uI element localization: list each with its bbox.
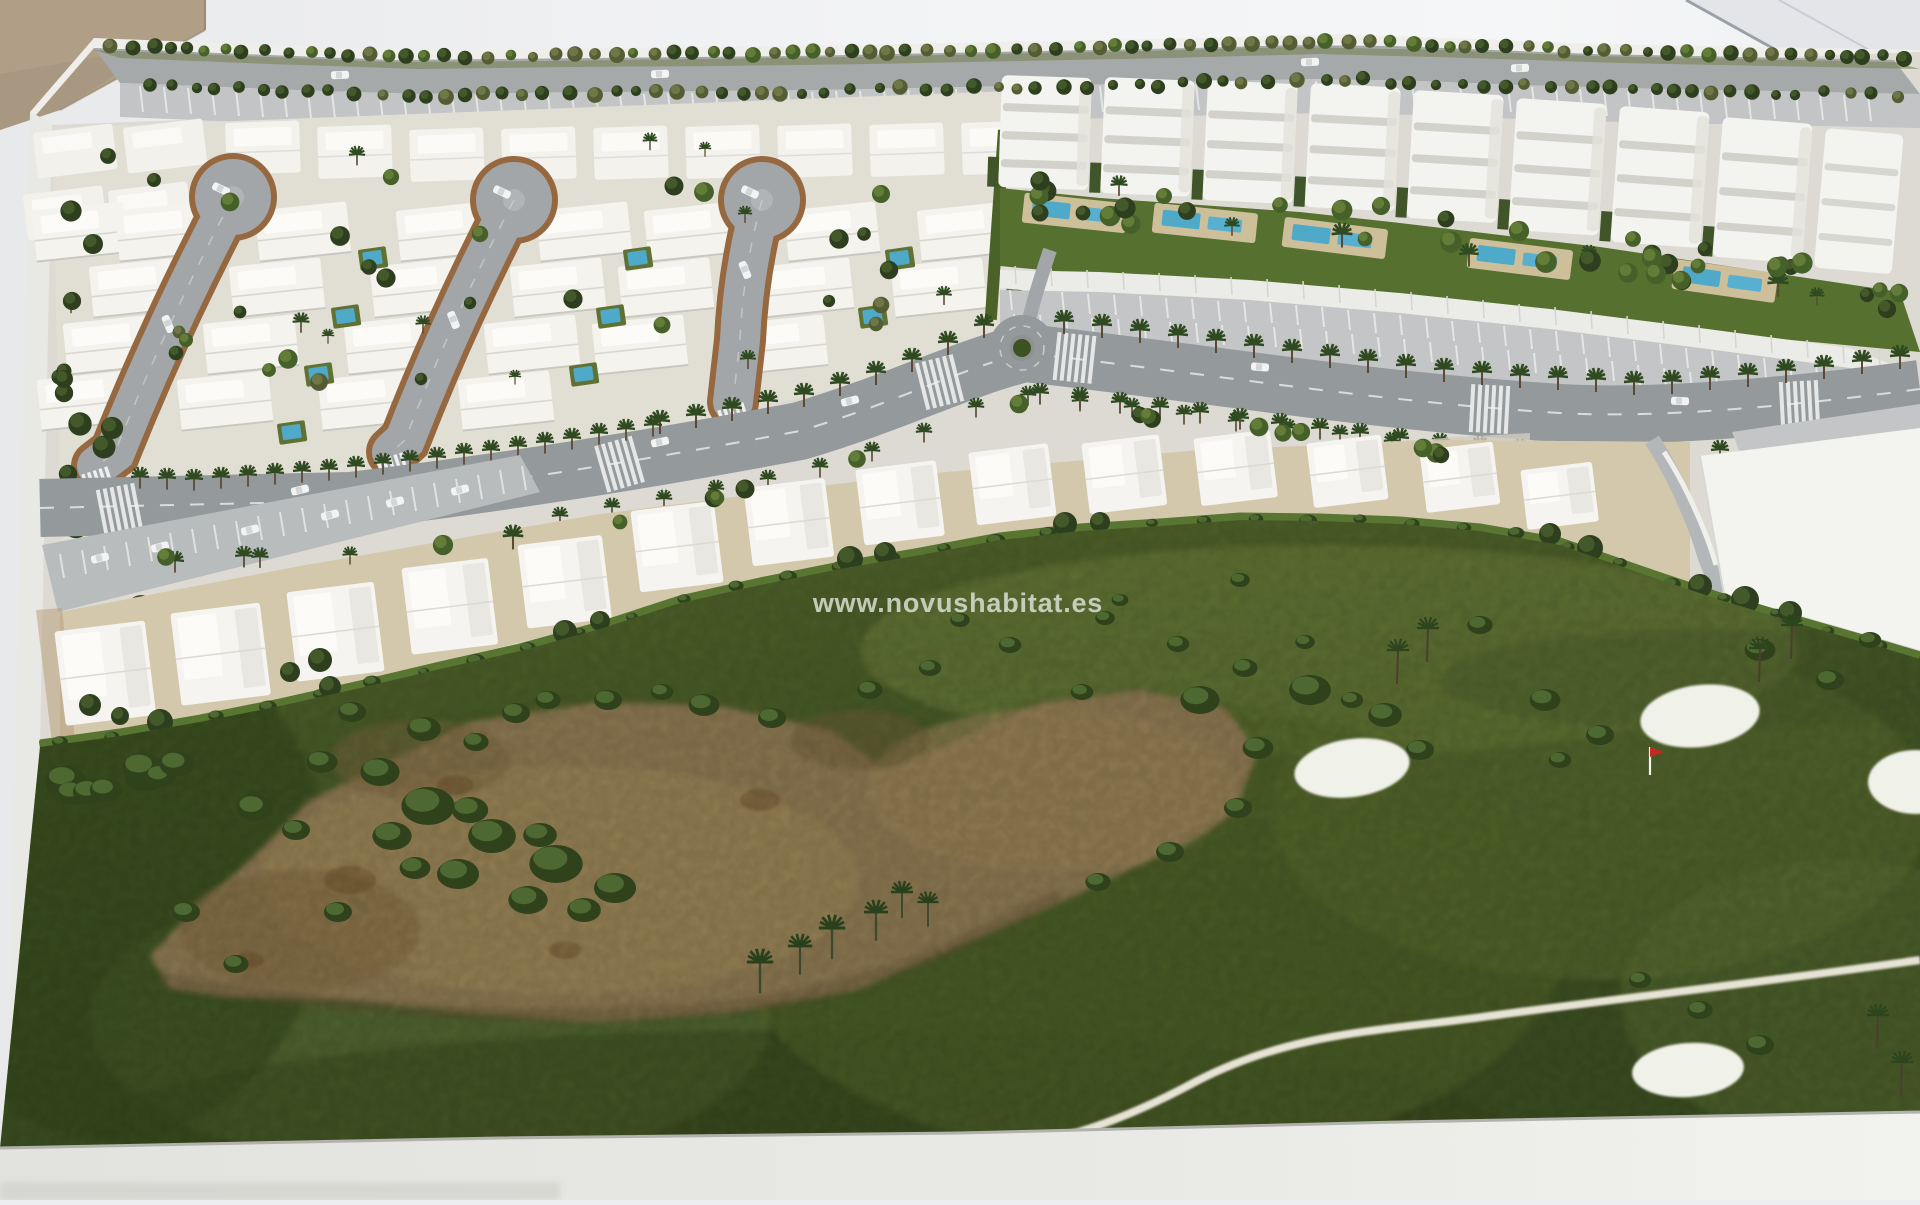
svg-text:www.novushabitat.es: www.novushabitat.es (812, 588, 1103, 618)
